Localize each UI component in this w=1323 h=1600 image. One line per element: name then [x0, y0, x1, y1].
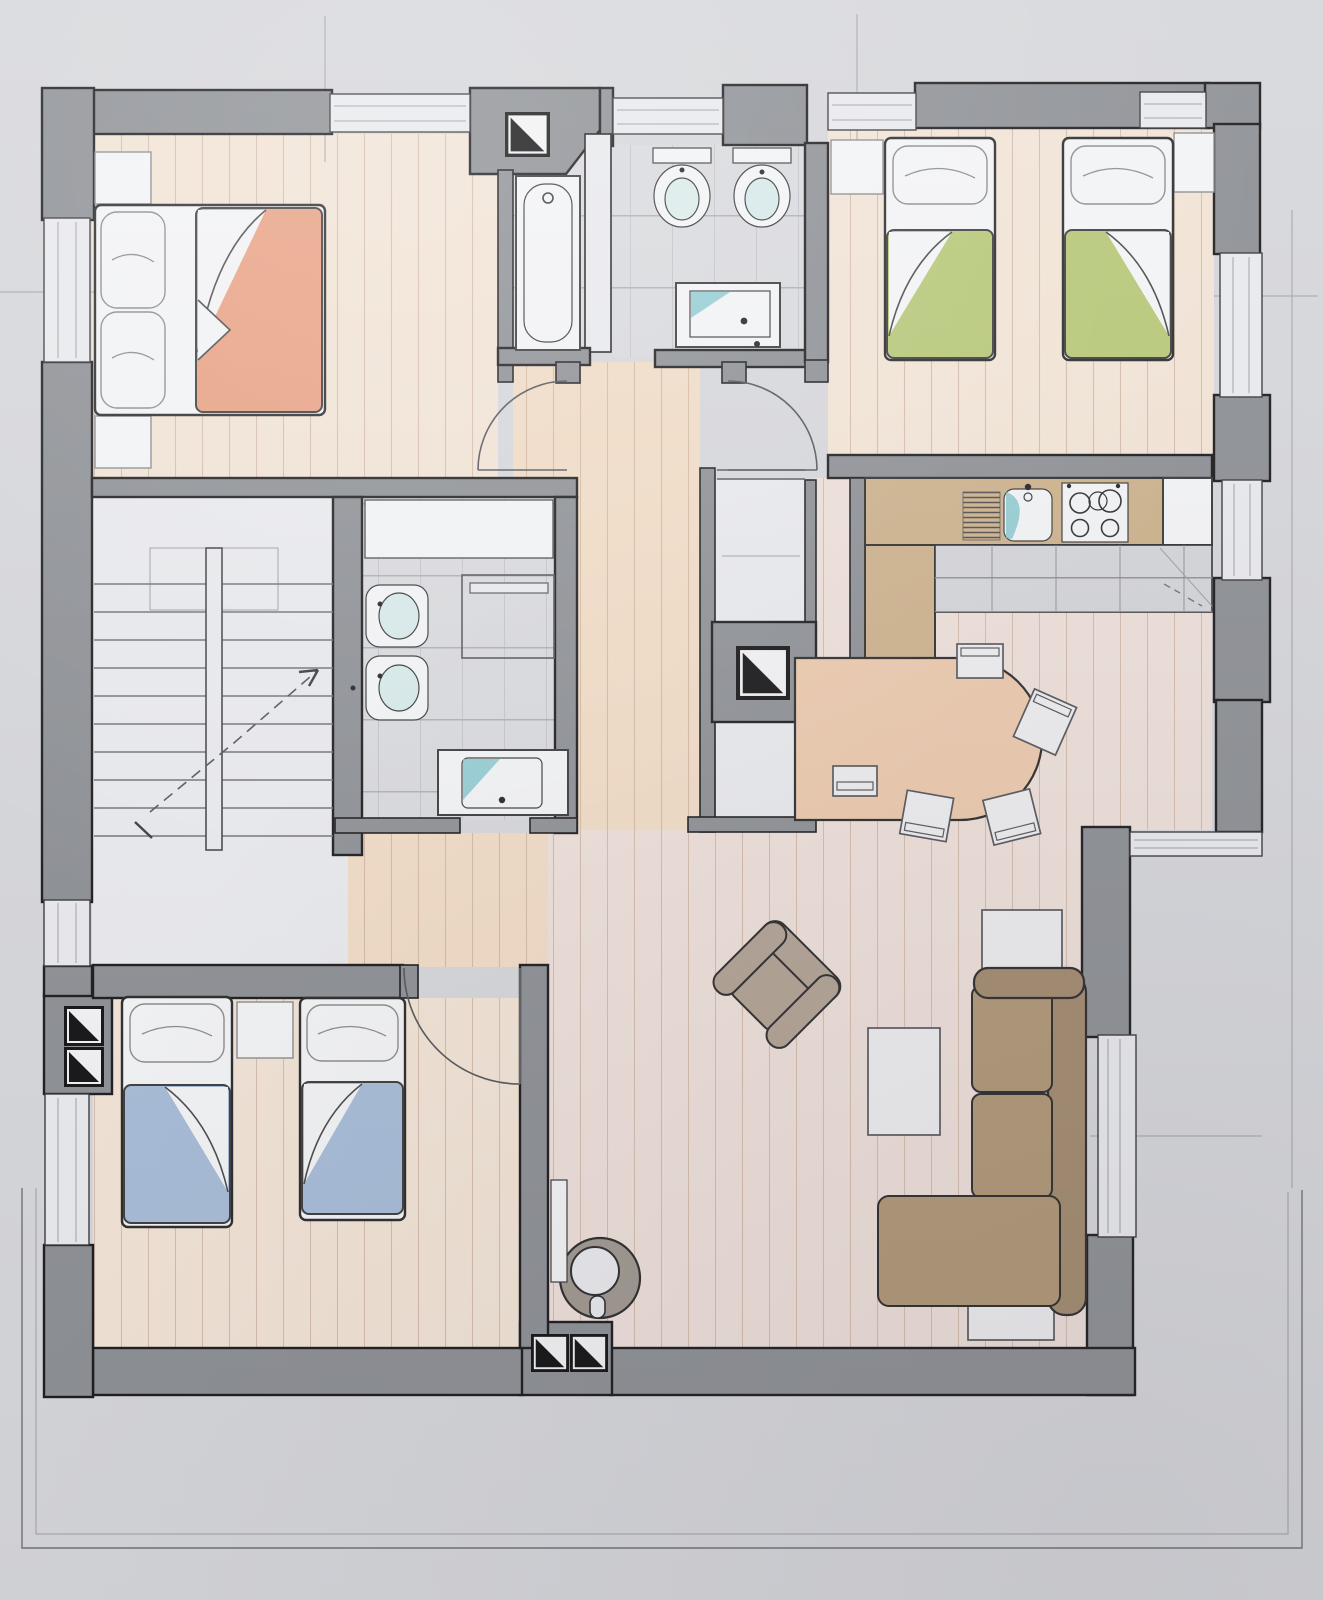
washbasin-small	[438, 750, 568, 815]
nightstand	[95, 152, 151, 204]
shaft-icon	[532, 1335, 567, 1370]
door-hinge-bedroom-blue	[400, 965, 418, 998]
side-table	[968, 1306, 1054, 1340]
floor-niche	[716, 722, 796, 817]
wardrobe-door	[717, 470, 805, 479]
wall-bedroom-blue-top	[93, 965, 403, 998]
stove	[1062, 483, 1128, 542]
kitchen-cabinet	[1163, 478, 1212, 545]
floor-stair-landing	[92, 855, 348, 967]
wall-bottom-living	[610, 1348, 1135, 1395]
nightstand	[831, 140, 883, 194]
coffee-table	[868, 1028, 940, 1135]
washbasin-vanity	[676, 283, 780, 347]
dish-rack	[963, 492, 1000, 540]
counter-front-tiles	[935, 545, 1212, 612]
window-right-kitchen	[1222, 480, 1262, 580]
wall-kitchen-left	[850, 478, 865, 680]
sofa-chaise	[878, 1196, 1060, 1306]
kitchen-sink	[1004, 484, 1052, 541]
window-left-bedroom-master	[44, 218, 90, 362]
nightstand	[237, 1002, 293, 1058]
window-left-landing	[44, 900, 90, 966]
chair	[833, 766, 877, 796]
sofa-arm	[974, 968, 1084, 998]
wall-top-bedroom-master	[92, 90, 332, 134]
wall-kitchen-top	[828, 455, 1212, 478]
bidet-small	[366, 585, 428, 647]
window-top-bedroom-green-2	[1140, 92, 1206, 128]
floor-wardrobe	[715, 480, 805, 622]
window-top-bath	[613, 98, 723, 134]
nightstand	[95, 416, 151, 468]
wall-stairs-top	[92, 478, 577, 497]
laundry-counter	[365, 500, 553, 558]
pillow	[101, 312, 165, 408]
wall-stairs-right	[333, 497, 362, 855]
nightstand	[1174, 133, 1214, 192]
wall-wardrobe-right	[805, 480, 816, 622]
door-hall-right	[728, 381, 817, 470]
wall-left-stairs	[42, 362, 92, 902]
radiator	[551, 1180, 567, 1282]
bidet	[733, 148, 791, 227]
window-top-bedroom-master	[330, 94, 470, 132]
wall-between-baths	[585, 134, 611, 352]
terrace-door-dining	[1130, 832, 1262, 856]
side-table	[982, 910, 1062, 972]
window-top-bedroom-green-1	[828, 93, 916, 130]
single-bed-green-1	[885, 138, 995, 360]
floor-plan-photo	[0, 0, 1323, 1600]
pillow	[101, 212, 165, 308]
shaft-icon	[507, 114, 549, 156]
chair	[957, 644, 1003, 678]
door-hinge-right	[722, 362, 746, 383]
bathtub	[516, 176, 580, 350]
single-bed-green-2	[1063, 138, 1173, 360]
window-right-bedroom-green	[1220, 253, 1262, 397]
wall-left-upper	[42, 88, 94, 220]
wall-living-step	[1082, 827, 1130, 1037]
wall-bedroom-blue-east	[520, 965, 548, 1348]
door-hinge-left	[556, 362, 580, 383]
stair-center-rail	[206, 548, 222, 850]
floor-plan-canvas	[0, 0, 1323, 1600]
single-bed-blue-2	[300, 998, 405, 1220]
wall-bedroom-green-west	[805, 143, 828, 362]
shaft-icon	[738, 648, 788, 698]
wall-bottom-bedroom-blue	[93, 1348, 522, 1395]
wood-stove	[560, 1238, 640, 1318]
shaft-icon	[66, 1008, 103, 1045]
window-left-bedroom-blue	[45, 1094, 89, 1245]
sofa-cushion	[972, 986, 1052, 1092]
double-bed	[95, 205, 325, 415]
orange-blanket	[196, 208, 322, 412]
sofa-cushion	[972, 1094, 1052, 1198]
toilet	[653, 148, 711, 227]
wall-right-upper	[1214, 124, 1260, 254]
balcony-door-living	[1098, 1035, 1136, 1237]
single-bed-blue-1	[122, 997, 232, 1227]
shaft-icon	[571, 1335, 606, 1370]
shaft-icon	[66, 1049, 103, 1086]
